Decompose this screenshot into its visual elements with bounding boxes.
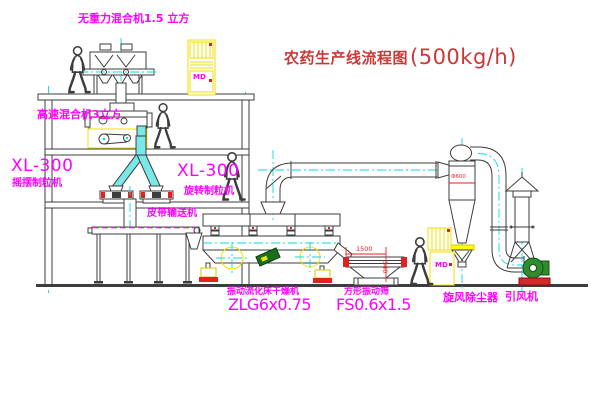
cabinet-marking-top: MD <box>193 74 206 81</box>
granulator-left-name-label: 摇摆制粒机 <box>12 179 62 189</box>
title-text: 农药生产线流程图 <box>284 47 408 68</box>
title-capacity: (500kg/h) <box>410 45 517 69</box>
control-cabinet-top <box>188 40 215 95</box>
high-speed-mixer-label: 高速混合机3立方 <box>37 109 122 120</box>
person-figure <box>155 104 175 147</box>
cyclone-label: 旋风除尘器 <box>443 292 498 303</box>
granulator-right-model-label: XL-300 <box>177 163 239 180</box>
ground-line <box>36 284 588 287</box>
exhaust-duct <box>258 150 462 220</box>
screen-height-dimension: 540 <box>382 261 389 273</box>
belt-conveyor-label: 皮带输送机 <box>147 209 197 219</box>
screen-width-dimension: 1500 <box>356 246 373 253</box>
granulator-right <box>140 186 173 203</box>
cabinet-marking-right: MD <box>435 262 448 269</box>
granulator-right-name-label: 旋转制粒机 <box>184 187 234 197</box>
fluid-bed-dryer <box>186 214 352 283</box>
diagram-title: 农药生产线流程图 (500kg/h) <box>284 45 517 69</box>
vibrating-screen <box>343 247 407 285</box>
granulator-left-model-label: XL-300 <box>11 158 73 175</box>
process-flow-diagram: 农药生产线流程图 (500kg/h) 无重力混合机1.5 立方 高速混合机3立方… <box>0 0 600 403</box>
dryer-model-label: ZLG6x0.75 <box>228 297 311 313</box>
screen-model-label: FS0.6x1.5 <box>336 297 411 313</box>
belt-conveyor <box>88 227 200 284</box>
gravity-free-mixer-label: 无重力混合机1.5 立方 <box>78 13 189 24</box>
cyclone-diameter-annotation: Φ600 <box>451 175 466 181</box>
control-cabinet-right <box>428 228 454 285</box>
fan-label: 引风机 <box>505 291 538 302</box>
induced-draft-fan <box>519 256 550 285</box>
